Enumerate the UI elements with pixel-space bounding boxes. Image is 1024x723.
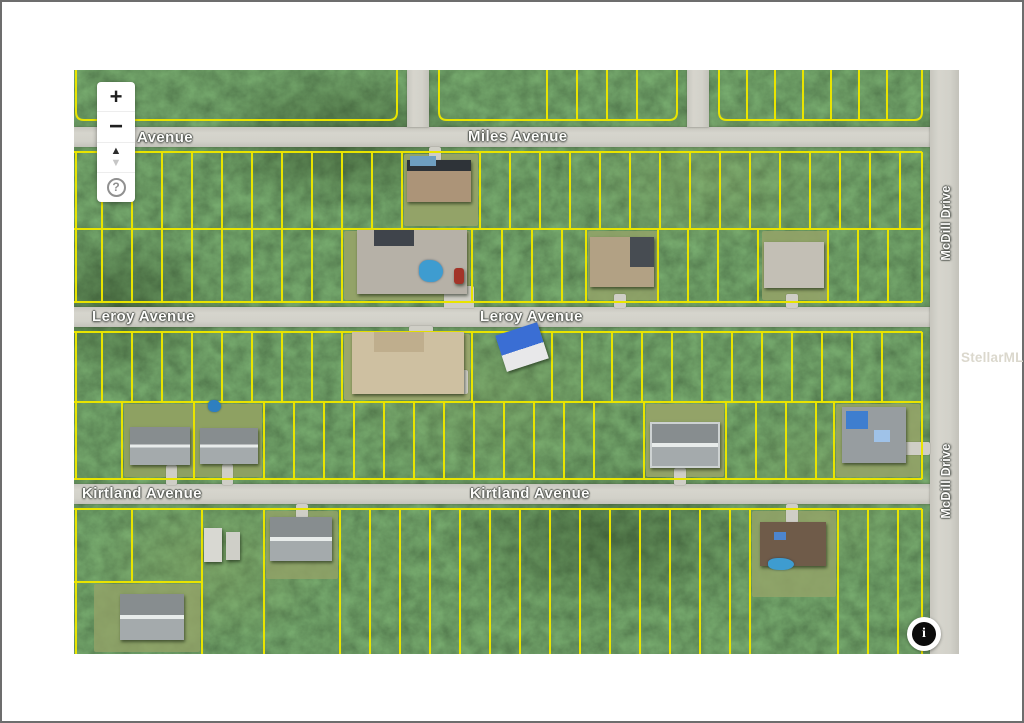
house <box>764 242 824 288</box>
house <box>650 422 720 468</box>
house <box>407 160 471 202</box>
satellite-map-viewport[interactable]: Avenue Miles Avenue Leroy Avenue Leroy A… <box>74 70 959 654</box>
info-button[interactable]: i <box>907 617 941 651</box>
shed <box>204 528 222 562</box>
pan-toggle-button[interactable]: ▲ ▼ <box>97 142 135 172</box>
swimming-pool <box>208 400 221 412</box>
house <box>270 517 332 561</box>
house <box>200 428 258 464</box>
roof-wing <box>374 332 424 352</box>
info-icon: i <box>912 622 936 646</box>
swimming-pool <box>768 558 794 570</box>
question-mark-icon: ? <box>107 178 126 197</box>
screened-roof <box>630 237 654 267</box>
screened-roof <box>374 230 414 246</box>
mls-map-window: { "watermark": { "text": "StellarMLS" },… <box>0 0 1024 723</box>
shed <box>226 532 240 560</box>
arrow-up-icon: ▲ <box>111 146 122 157</box>
blue-tarp <box>846 411 868 429</box>
zoom-in-button[interactable]: + <box>97 82 135 111</box>
pool-enclosure <box>410 156 436 166</box>
blue-tarp <box>874 430 890 442</box>
arrow-down-icon: ▼ <box>111 158 122 169</box>
blue-tarp <box>774 532 786 540</box>
stellar-mls-watermark: StellarMLS <box>961 350 1024 365</box>
house <box>130 427 190 465</box>
swimming-pool <box>419 260 443 282</box>
help-button[interactable]: ? <box>97 172 135 202</box>
parked-car <box>454 268 464 284</box>
map-control-panel: + − ▲ ▼ ? <box>97 82 135 202</box>
zoom-out-button[interactable]: − <box>97 111 135 141</box>
house <box>120 594 184 640</box>
